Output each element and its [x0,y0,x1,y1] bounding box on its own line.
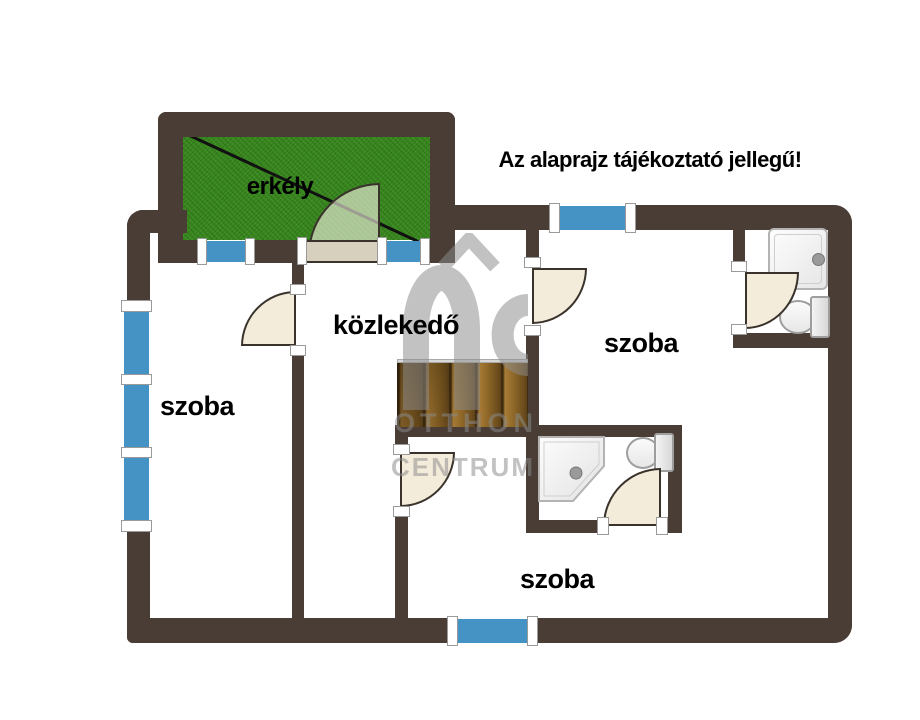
door-jamb [597,517,609,535]
door-jamb [297,237,307,265]
window-jamb [197,238,207,265]
door-swing [603,468,661,526]
window-mullion [121,520,152,532]
window-balcony-1 [203,241,250,262]
watermark-logo [385,233,545,483]
window-bottom [453,619,533,643]
window-mullion [121,447,152,458]
watermark-line1: OTTHON [394,408,530,439]
window-jamb [625,203,636,233]
door-jamb [290,284,306,295]
page-title: Az alaprajz tájékoztató jellegű! [460,147,840,173]
house-roof-icon [443,239,495,267]
watermark-line2: CENTRUM [391,452,533,483]
wall [526,520,603,533]
wall [127,618,453,643]
toilet-tank [810,296,830,338]
corner-shower-tray [538,436,606,503]
wall [733,333,852,348]
toilet-tank [654,433,674,472]
room-label-bottom: szoba [507,564,607,595]
window-top [556,206,629,230]
floor-plan: OTTHON CENTRUM Az alaprajz tájékoztató j… [0,0,920,720]
window-jamb [549,203,560,233]
window-jamb [527,616,538,646]
wall [158,112,455,137]
door-jamb [656,517,668,535]
wall [430,205,556,230]
door-jamb [731,324,747,335]
window-left [124,305,149,527]
wall [533,618,852,643]
window-jamb [447,616,458,646]
wall [127,210,150,307]
room-label-balcony: erkély [230,173,330,201]
balcony-door-leaf [305,240,380,263]
wall [828,205,852,643]
wall [629,205,852,230]
window-jamb [245,238,255,265]
wall [395,508,408,618]
door-jamb [731,261,747,272]
window-mullion [121,374,152,385]
room-label-top-right: szoba [591,328,691,359]
wall [292,345,304,618]
window-mullion [121,300,152,312]
door-jamb [393,506,410,517]
room-label-hallway: közlekedő [326,310,466,341]
room-label-left: szoba [147,391,247,422]
door-swing [241,291,296,346]
shower-drain [812,253,825,266]
door-jamb [290,345,306,356]
